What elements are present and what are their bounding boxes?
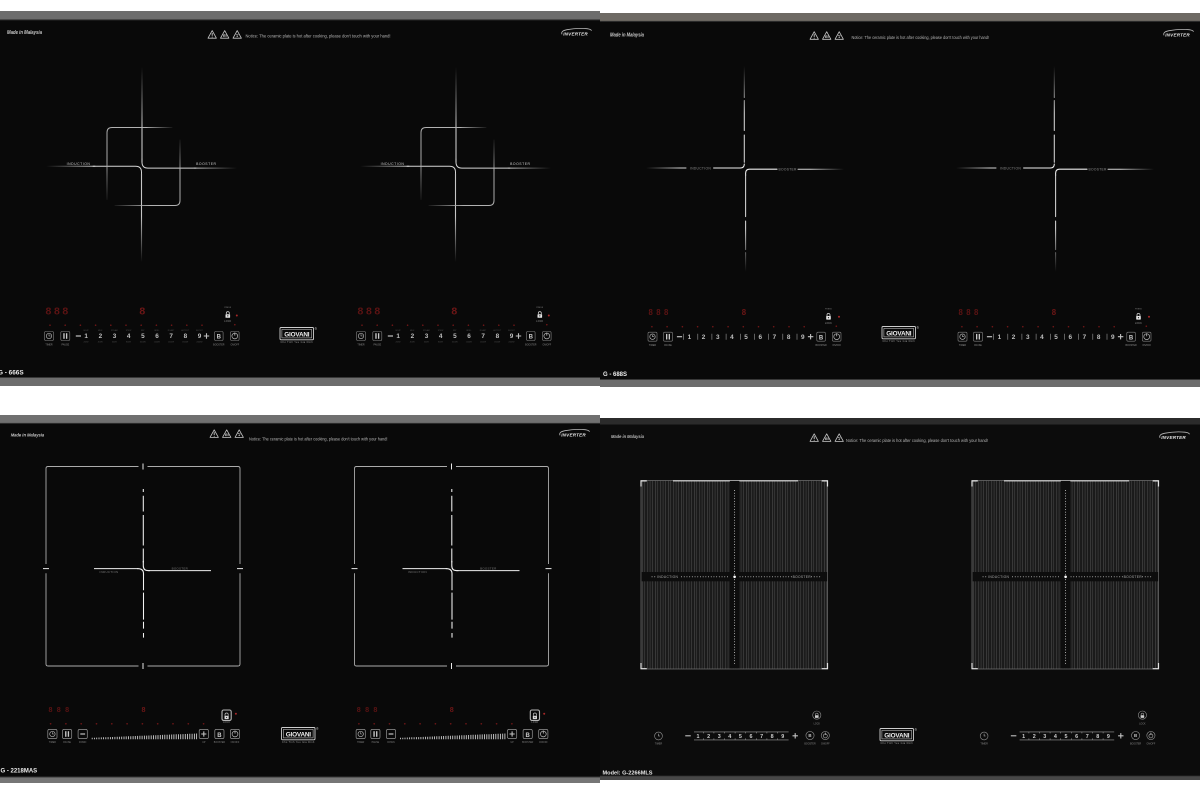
svg-text:Notice: The ceramic plate is h: Notice: The ceramic plate is hot after c… <box>846 438 988 443</box>
svg-text:INVERTER: INVERTER <box>561 432 586 437</box>
svg-text:GIOVANI: GIOVANI <box>886 330 912 337</box>
svg-text:GIOVANI: GIOVANI <box>284 332 310 339</box>
svg-text:Notice: The ceramic plate is h: Notice: The ceramic plate is hot after c… <box>246 34 391 39</box>
svg-text:Made in Malaysia: Made in Malaysia <box>611 433 645 438</box>
svg-text:G - 2218MAS: G - 2218MAS <box>1 768 38 774</box>
svg-text:Notice: The ceramic plate is h: Notice: The ceramic plate is hot after c… <box>249 437 388 442</box>
svg-text:Made in Malaysia: Made in Malaysia <box>11 433 45 439</box>
svg-text:GIOVANI: GIOVANI <box>286 732 312 739</box>
svg-text:Made in Malaysia: Made in Malaysia <box>7 30 42 36</box>
svg-text:INVERTER: INVERTER <box>1161 434 1186 439</box>
svg-text:G - 666S: G - 666S <box>0 370 24 377</box>
svg-text:INVERTER: INVERTER <box>563 31 588 36</box>
svg-text:G - 688S: G - 688S <box>603 371 627 377</box>
svg-text:Cho Tinh Yeu Gia Dinh: Cho Tinh Yeu Gia Dinh <box>282 741 315 744</box>
svg-text:Cho Tinh Yeu Gia Dinh: Cho Tinh Yeu Gia Dinh <box>880 742 913 745</box>
svg-text:Notice: The ceramic plate is h: Notice: The ceramic plate is hot after c… <box>852 34 990 39</box>
svg-text:INVERTER: INVERTER <box>1165 32 1190 37</box>
svg-text:Cho Tinh Yeu Gia Dinh: Cho Tinh Yeu Gia Dinh <box>280 341 313 344</box>
svg-text:GIOVANI: GIOVANI <box>884 732 910 739</box>
svg-text:Cho Tinh Yeu Gia Dinh: Cho Tinh Yeu Gia Dinh <box>882 340 915 343</box>
svg-text:Model: G-2266MLS: Model: G-2266MLS <box>603 770 653 776</box>
svg-text:Made in Malaysia: Made in Malaysia <box>610 32 644 38</box>
